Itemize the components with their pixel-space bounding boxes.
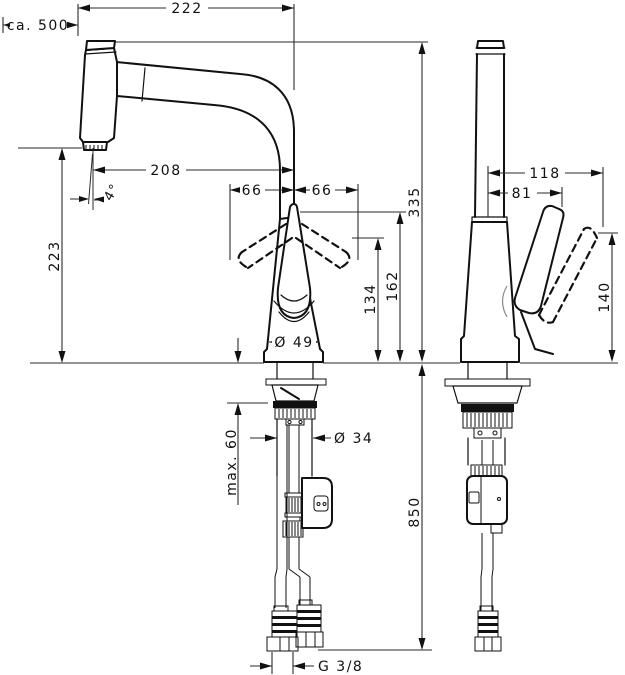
dim-lever-height-tilted: 134 xyxy=(363,238,382,362)
hose-b-upper xyxy=(289,425,299,493)
crimp-ribs xyxy=(286,522,301,536)
dim-label-spout-reach-total: 222 xyxy=(171,1,202,17)
dim-label-lever-height-up: 162 xyxy=(385,270,401,301)
dim-label-spray-angle: 4° xyxy=(101,181,123,204)
undercounter-side xyxy=(445,363,530,651)
dim-label-swing-right: 66 xyxy=(312,183,333,199)
coupling-band xyxy=(285,493,302,497)
dim-label-lever-reach-up: 81 xyxy=(512,186,533,202)
lever-side xyxy=(515,206,564,313)
dim-label-wall-distance: ca. 500 xyxy=(7,18,69,34)
dim-wall-distance: ca. 500 xyxy=(3,17,78,34)
dim-label-lever-reach-tilted: 118 xyxy=(529,166,560,182)
gasket xyxy=(273,401,317,408)
dim-label-thread-size: G 3/8 xyxy=(318,659,363,675)
hose-break xyxy=(481,569,493,577)
shank-top xyxy=(277,363,313,379)
screw-icon xyxy=(288,420,291,423)
coupling-band xyxy=(285,513,302,517)
spout-arm xyxy=(116,62,294,220)
spray-head-cap xyxy=(86,41,115,50)
undercounter-front xyxy=(266,363,332,651)
faucet-dimension-drawing: ca. 500 222 208 66 66 xyxy=(0,0,625,675)
dim-hose-length: 850 xyxy=(407,364,426,650)
body-cone-side xyxy=(461,222,519,362)
dim-label-body-diameter: Ø 49 xyxy=(274,335,313,351)
side-view xyxy=(445,41,597,651)
gasket xyxy=(461,404,514,412)
hoses-in-shank xyxy=(482,440,493,465)
shank-top xyxy=(468,363,507,379)
dim-label-aerator-height: 223 xyxy=(47,240,63,271)
hose-upper xyxy=(482,533,493,569)
dim-total-height: 335 xyxy=(407,42,426,362)
hose-connector-right xyxy=(296,600,323,647)
dim-spout-reach-aerator: 208 xyxy=(93,163,294,179)
dim-label-swing-left: 66 xyxy=(242,183,263,199)
dim-label-total-height: 335 xyxy=(407,186,423,217)
spout-cap-side xyxy=(477,41,504,48)
dim-body-diameter: Ø 49 xyxy=(269,335,319,351)
dim-lever-reach-up: 81 xyxy=(488,186,562,207)
weight-tab xyxy=(491,524,502,533)
dim-label-spout-reach-aerator: 208 xyxy=(150,163,181,179)
lever-linkage xyxy=(521,312,553,354)
mounting-flange xyxy=(266,379,326,385)
aerator xyxy=(83,142,107,150)
wedge-hook xyxy=(281,388,299,399)
mounting-wedge xyxy=(272,385,318,401)
hose-connector-side xyxy=(475,606,501,651)
mounting-flange xyxy=(445,379,530,386)
screw-icon xyxy=(493,431,497,435)
nut-ribs xyxy=(467,413,507,427)
dim-aerator-height: 223 xyxy=(47,148,66,363)
mounting-wedge xyxy=(453,386,522,403)
dim-label-hose-length: 850 xyxy=(407,496,423,527)
dim-label-max-counter-thickness: max. 60 xyxy=(224,428,240,496)
dim-thread-size: G 3/8 xyxy=(250,652,363,675)
dim-label-lever-clearance-height: 140 xyxy=(597,281,613,312)
dim-label-lever-height-tilted: 134 xyxy=(363,283,379,314)
collar-ribs xyxy=(475,466,499,475)
hex-nut xyxy=(296,632,323,647)
screw-icon xyxy=(299,420,302,423)
dim-lever-clearance-height: 140 xyxy=(597,233,616,362)
nut-ribs xyxy=(279,409,311,418)
fixing-bracket xyxy=(286,419,304,425)
hose-connector-left xyxy=(267,606,298,651)
spray-head xyxy=(80,48,117,142)
dim-label-shank-diameter: Ø 34 xyxy=(334,431,373,447)
coupling-ribbed xyxy=(286,497,301,513)
technical-drawing-page: ca. 500 222 208 66 66 xyxy=(0,0,625,675)
hex-nut xyxy=(267,637,298,651)
screw-icon xyxy=(478,431,482,435)
hex-nut xyxy=(475,637,501,651)
crimp-neck xyxy=(287,517,300,521)
coupling-ribs xyxy=(289,498,298,512)
hose-break xyxy=(275,569,310,577)
hose-b-mid xyxy=(289,537,299,569)
hoses-lower xyxy=(275,577,310,608)
shank-tube xyxy=(468,438,505,465)
shank-tube xyxy=(277,419,312,476)
dim-spray-angle: 4° xyxy=(70,148,123,210)
hose-weight-side xyxy=(467,476,507,524)
dim-lever-height-up: 162 xyxy=(385,212,404,362)
